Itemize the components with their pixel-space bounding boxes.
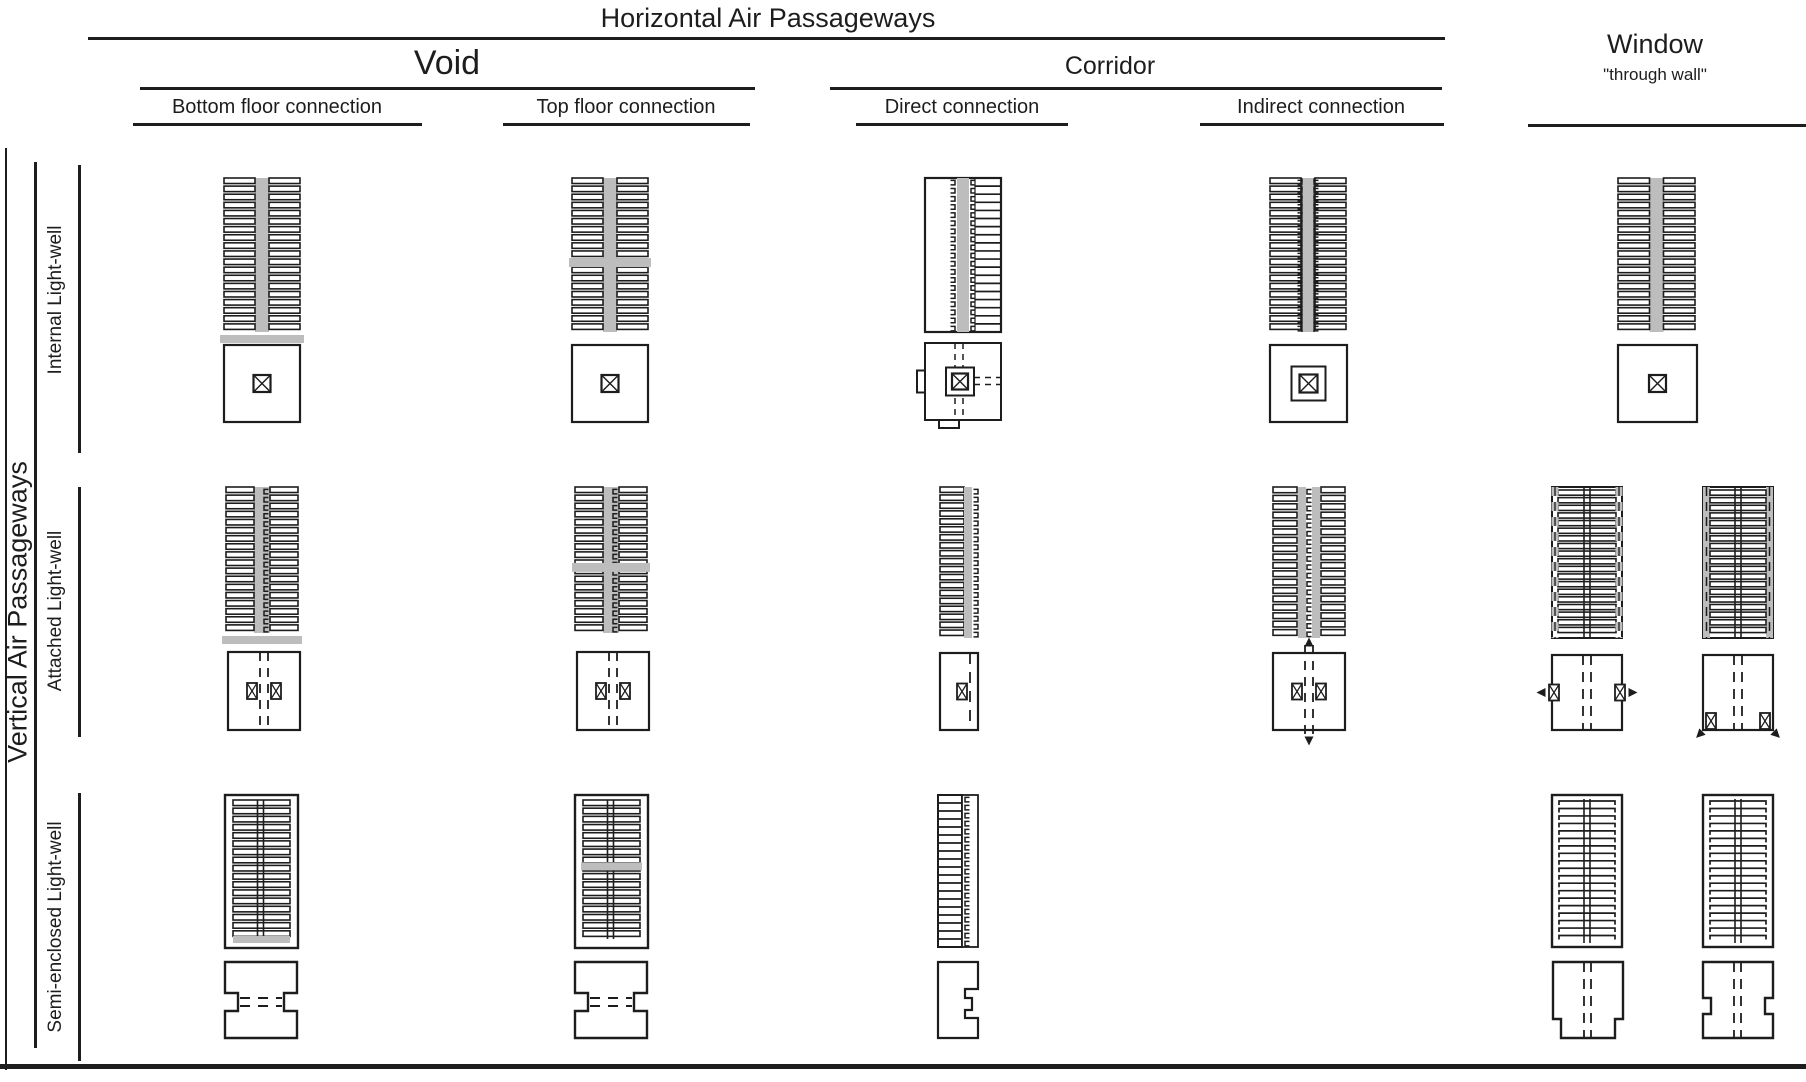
plan-diagram-plan-attached-direct [940, 653, 978, 730]
section-diagram-sec-window-attached-dashed [1552, 487, 1622, 638]
cell-internal-window [1618, 178, 1697, 422]
cell-semi-window [1552, 795, 1773, 1038]
cell-attached-bottom [222, 487, 302, 730]
section-diagram-sec-semi-window [1552, 795, 1622, 947]
section-diagram-sec-semi-direct [938, 795, 978, 947]
section-diagram-sec-void-top [569, 178, 651, 332]
plan-diagram-plan-internal-xbox [572, 345, 648, 422]
plan-diagram-plan-semi-waist [575, 962, 647, 1038]
section-diagram-sec-attached-bottom [222, 487, 302, 644]
plan-diagram-plan-window-corner-arrows [1693, 655, 1783, 741]
plan-diagram-plan-internal-xbox [224, 345, 300, 422]
plan-diagram-plan-semi-direct-notch [938, 962, 978, 1038]
section-diagram-sec-semi-top [575, 795, 648, 948]
cell-attached-top [572, 487, 650, 730]
section-diagram-sec-attached-top [572, 487, 650, 633]
section-diagram-sec-corridor-direct-internal [925, 178, 1001, 332]
plan-diagram-plan-attached-twin-windows [228, 652, 300, 730]
cell-semi-bottom [225, 795, 298, 1038]
cell-attached-direct [940, 487, 978, 730]
plan-diagram-plan-semi-waist [225, 962, 297, 1038]
plan-diagram-plan-semi-window-step [1553, 962, 1623, 1038]
section-diagram-sec-corridor-indirect-internal [1270, 178, 1346, 332]
plan-diagram-plan-attached-twin-windows [577, 652, 649, 730]
cell-internal-top [569, 178, 651, 422]
section-diagram-sec-window-attached-solid [1703, 487, 1773, 638]
cell-internal-direct [917, 178, 1001, 428]
cell-internal-bottom [220, 178, 304, 422]
plan-diagram-plan-internal-xbox [1618, 345, 1697, 422]
section-diagram-sec-semi-bottom [225, 795, 298, 948]
section-diagram-sec-void-bottom [220, 178, 304, 343]
cell-semi-top [575, 795, 648, 1038]
section-diagram-sec-semi-window [1703, 795, 1773, 947]
section-diagram-sec-attached-direct [940, 487, 978, 638]
cell-semi-direct [938, 795, 978, 1038]
cell-attached-indirect [1273, 487, 1345, 746]
plan-diagram-plan-internal-ring-xbox [1270, 345, 1347, 422]
cell-attached-window [1537, 487, 1784, 741]
plan-diagram-plan-window-side-arrows [1537, 655, 1638, 730]
plan-diagram-plan-semi-window-notch [1703, 962, 1773, 1038]
taxonomy-matrix-figure: Horizontal Air Passageways Void Corridor… [0, 0, 1806, 1082]
section-diagram-sec-attached-indirect [1273, 487, 1345, 638]
plan-diagram-plan-internal-direct [917, 343, 1001, 428]
cell-internal-indirect [1270, 178, 1347, 422]
section-diagram-sec-void-plain [1618, 178, 1695, 332]
diagram-layer [0, 0, 1806, 1082]
plan-diagram-plan-attached-indirect-arrows [1273, 638, 1345, 746]
